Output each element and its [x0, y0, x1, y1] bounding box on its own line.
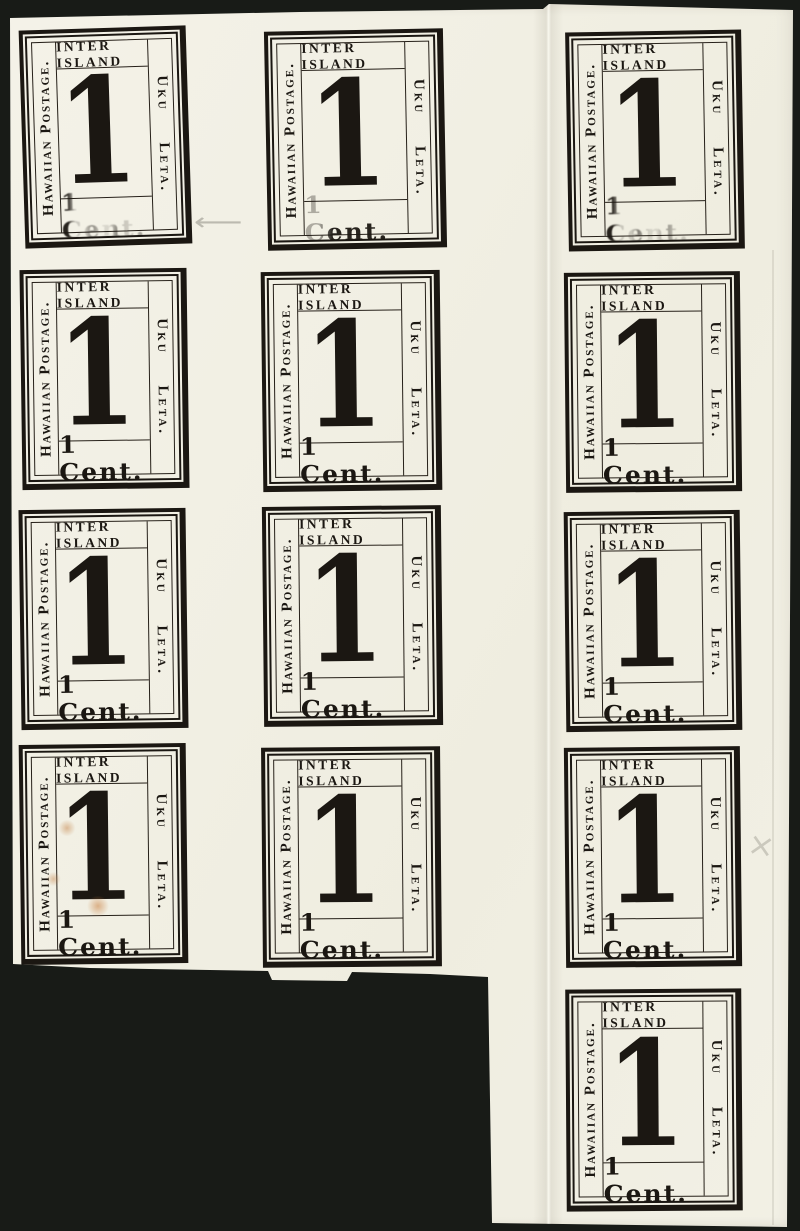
top-label-text: INTER ISLAND	[299, 515, 402, 548]
right-label: Uku Leta.	[405, 320, 423, 438]
numeral: 1	[56, 559, 136, 671]
stamp-r1c2: Hawaiian Postage. INTER ISLAND 1 1 Cent.…	[264, 28, 447, 250]
stamp-inner-frame: Hawaiian Postage. INTER ISLAND 1 1 Cent.…	[31, 755, 174, 951]
stamp-right-strip: Uku Leta.	[402, 518, 428, 710]
denomination-band: 1 Cent.	[58, 679, 149, 714]
stamp-inner-frame: Hawaiian Postage. INTER ISLAND 1 1 Cent.…	[576, 283, 728, 479]
stamp-r5c3: Hawaiian Postage. INTER ISLAND 1 1 Cent.…	[565, 988, 743, 1211]
denomination-label: 1 Cent.	[58, 669, 150, 725]
right-label: Uku Leta.	[152, 75, 173, 193]
numeral: 1	[304, 556, 384, 668]
top-label-text: INTER ISLAND	[56, 518, 147, 551]
denomination-label: 1 Cent.	[603, 1152, 703, 1208]
stamp-r2c2: Hawaiian Postage. INTER ISLAND 1 1 Cent.…	[261, 270, 443, 492]
numeral: 1	[303, 321, 384, 433]
stamp-outer-frame: Hawaiian Postage. INTER ISLAND 1 1 Cent.…	[565, 988, 743, 1211]
stamp-center-panel: INTER ISLAND 1 1 Cent.	[601, 284, 703, 477]
stamp-mid-frame: Hawaiian Postage. INTER ISLAND 1 1 Cent.…	[26, 274, 182, 482]
numeral-panel: 1	[601, 550, 703, 682]
left-label: Hawaiian Postage.	[582, 62, 602, 219]
stamp-center-panel: INTER ISLAND 1 1 Cent.	[56, 521, 150, 714]
top-label: INTER ISLAND	[299, 518, 402, 546]
top-label-text: INTER ISLAND	[57, 278, 148, 311]
top-label: INTER ISLAND	[298, 760, 401, 788]
stamp-outer-frame: Hawaiian Postage. INTER ISLAND 1 1 Cent.…	[261, 746, 442, 968]
left-label: Hawaiian Postage.	[280, 61, 300, 218]
numeral: 1	[605, 561, 686, 673]
stamp-right-strip: Uku Leta.	[147, 521, 174, 713]
top-label-text: INTER ISLAND	[298, 280, 401, 313]
top-label: INTER ISLAND	[56, 40, 148, 70]
left-label: Hawaiian Postage.	[580, 778, 599, 934]
right-label: Uku Leta.	[405, 797, 423, 915]
stamp-mid-frame: Hawaiian Postage. INTER ISLAND 1 1 Cent.…	[268, 511, 435, 719]
denomination-band: 1 Cent.	[59, 439, 150, 474]
stamp-center-panel: INTER ISLAND 1 1 Cent.	[299, 518, 404, 711]
right-edge-crease	[772, 250, 774, 1225]
stamp-left-strip: Hawaiian Postage.	[32, 523, 59, 715]
stamp-inner-frame: Hawaiian Postage. INTER ISLAND 1 1 Cent.…	[273, 758, 428, 953]
stamp-mid-frame: Hawaiian Postage. INTER ISLAND 1 1 Cent.…	[25, 32, 184, 241]
denomination-label: 1 Cent.	[603, 907, 704, 963]
stamp-outer-frame: Hawaiian Postage. INTER ISLAND 1 1 Cent.…	[565, 29, 745, 251]
stamp-left-strip: Hawaiian Postage.	[32, 758, 58, 950]
numeral-panel: 1	[57, 67, 152, 199]
denomination-band: 1 Cent.	[61, 196, 153, 233]
denomination-label: 1 Cent.	[301, 666, 405, 722]
top-label-text: INTER ISLAND	[601, 520, 701, 553]
top-label-text: INTER ISLAND	[301, 39, 405, 73]
stamp-right-strip: Uku Leta.	[401, 759, 427, 951]
left-label: Hawaiian Postage.	[277, 303, 296, 459]
stamp-mid-frame: Hawaiian Postage. INTER ISLAND 1 1 Cent.…	[270, 34, 439, 242]
top-label-text: INTER ISLAND	[601, 281, 701, 314]
numeral-panel: 1	[56, 548, 149, 680]
stamp-mid-frame: Hawaiian Postage. INTER ISLAND 1 1 Cent.…	[570, 516, 735, 724]
top-label: INTER ISLAND	[56, 521, 147, 549]
stamp-left-strip: Hawaiian Postage.	[578, 45, 605, 236]
numeral-panel: 1	[298, 310, 403, 442]
numeral: 1	[57, 319, 137, 431]
pencil-arrow-mark: ⟵	[194, 208, 243, 237]
stamp-inner-frame: Hawaiian Postage. INTER ISLAND 1 1 Cent.…	[273, 282, 428, 478]
numeral: 1	[57, 76, 139, 189]
denomination-label: 1 Cent.	[304, 189, 408, 246]
stamp-outer-frame: Hawaiian Postage. INTER ISLAND 1 1 Cent.…	[564, 746, 742, 968]
stamp-center-panel: INTER ISLAND 1 1 Cent.	[298, 283, 403, 476]
stamp-inner-frame: Hawaiian Postage. INTER ISLAND 1 1 Cent.…	[576, 758, 728, 954]
stamp-center-panel: INTER ISLAND 1 1 Cent.	[601, 759, 703, 952]
stamp-left-strip: Hawaiian Postage.	[577, 286, 603, 478]
numeral-panel: 1	[302, 69, 407, 201]
stamp-inner-frame: Hawaiian Postage. INTER ISLAND 1 1 Cent.…	[31, 38, 178, 234]
stamp-sheet: Hawaiian Postage. INTER ISLAND 1 1 Cent.…	[0, 0, 800, 1231]
stamp-mid-frame: Hawaiian Postage. INTER ISLAND 1 1 Cent.…	[25, 514, 181, 722]
top-label: INTER ISLAND	[601, 284, 701, 312]
stamp-inner-frame: Hawaiian Postage. INTER ISLAND 1 1 Cent.…	[32, 280, 176, 476]
numeral-panel: 1	[603, 70, 705, 202]
right-label: Uku Leta.	[406, 555, 424, 673]
stamp-outer-frame: Hawaiian Postage. INTER ISLAND 1 1 Cent.…	[262, 505, 443, 727]
stamp-center-panel: INTER ISLAND 1 1 Cent.	[602, 1002, 703, 1197]
top-label: INTER ISLAND	[601, 523, 701, 551]
stamp-r4c3: Hawaiian Postage. INTER ISLAND 1 1 Cent.…	[564, 746, 742, 968]
denomination-label: 1 Cent.	[603, 671, 704, 727]
stamp-mid-frame: Hawaiian Postage. INTER ISLAND 1 1 Cent.…	[571, 994, 734, 1203]
stamp-inner-frame: Hawaiian Postage. INTER ISLAND 1 1 Cent.…	[576, 522, 728, 718]
denomination-band: 1 Cent.	[301, 676, 404, 711]
top-label-text: INTER ISLAND	[298, 757, 401, 790]
right-label: Uku Leta.	[705, 321, 723, 439]
denomination-band: 1 Cent.	[605, 200, 706, 236]
stamp-mid-frame: Hawaiian Postage. INTER ISLAND 1 1 Cent.…	[570, 752, 734, 960]
denomination-band: 1 Cent.	[603, 442, 703, 477]
stamp-left-strip: Hawaiian Postage.	[577, 761, 603, 953]
right-label: Uku Leta.	[707, 79, 726, 197]
denomination-band: 1 Cent.	[603, 917, 703, 952]
stamp-inner-frame: Hawaiian Postage. INTER ISLAND 1 1 Cent.…	[31, 520, 175, 716]
numeral-panel: 1	[56, 783, 149, 915]
stamp-center-panel: INTER ISLAND 1 1 Cent.	[57, 281, 151, 474]
stamp-outer-frame: Hawaiian Postage. INTER ISLAND 1 1 Cent.…	[564, 510, 743, 732]
right-label: Uku Leta.	[705, 560, 723, 678]
stamp-inner-frame: Hawaiian Postage. INTER ISLAND 1 1 Cent.…	[577, 1000, 728, 1197]
right-label: Uku Leta.	[151, 558, 170, 676]
stamp-r1c3: Hawaiian Postage. INTER ISLAND 1 1 Cent.…	[565, 29, 745, 251]
numeral: 1	[303, 797, 383, 909]
numeral: 1	[605, 322, 685, 434]
numeral: 1	[307, 79, 388, 191]
stamp-left-strip: Hawaiian Postage.	[277, 44, 305, 235]
denomination-label: 1 Cent.	[58, 904, 150, 960]
stamp-right-strip: Uku Leta.	[701, 759, 727, 951]
stamp-center-panel: INTER ISLAND 1 1 Cent.	[56, 756, 149, 949]
denomination-label: 1 Cent.	[299, 908, 402, 964]
numeral: 1	[56, 794, 136, 906]
stamp-right-strip: Uku Leta.	[148, 281, 175, 473]
stamp-right-strip: Uku Leta.	[401, 283, 427, 475]
denomination-band: 1 Cent.	[58, 914, 149, 949]
stamp-r3c3: Hawaiian Postage. INTER ISLAND 1 1 Cent.…	[564, 510, 743, 732]
numeral: 1	[606, 80, 687, 192]
stamp-inner-frame: Hawaiian Postage. INTER ISLAND 1 1 Cent.…	[276, 41, 433, 237]
left-label: Hawaiian Postage.	[35, 775, 54, 931]
stamp-left-strip: Hawaiian Postage.	[33, 283, 60, 475]
stamp-outer-frame: Hawaiian Postage. INTER ISLAND 1 1 Cent.…	[18, 508, 188, 730]
stamp-outer-frame: Hawaiian Postage. INTER ISLAND 1 1 Cent.…	[19, 268, 189, 490]
top-label-text: INTER ISLAND	[601, 756, 701, 789]
top-label: INTER ISLAND	[602, 1002, 702, 1030]
stamp-center-panel: INTER ISLAND 1 1 Cent.	[301, 42, 408, 235]
stamp-left-strip: Hawaiian Postage.	[274, 285, 300, 477]
denomination-label: 1 Cent.	[605, 190, 706, 247]
stamp-mid-frame: Hawaiian Postage. INTER ISLAND 1 1 Cent.…	[25, 749, 181, 957]
top-label: INTER ISLAND	[57, 281, 148, 309]
numeral-panel: 1	[298, 787, 402, 919]
stamp-right-strip: Uku Leta.	[701, 523, 727, 715]
stamp-left-strip: Hawaiian Postage.	[275, 520, 301, 712]
stamp-r2c1: Hawaiian Postage. INTER ISLAND 1 1 Cent.…	[19, 268, 189, 490]
stamp-r2c3: Hawaiian Postage. INTER ISLAND 1 1 Cent.…	[564, 271, 742, 493]
denomination-label: 1 Cent.	[603, 432, 704, 488]
stamp-outer-frame: Hawaiian Postage. INTER ISLAND 1 1 Cent.…	[19, 743, 189, 965]
numeral-panel: 1	[57, 308, 150, 440]
denomination-label: 1 Cent.	[59, 429, 151, 485]
denomination-band: 1 Cent.	[603, 1162, 703, 1197]
denomination-label: 1 Cent.	[300, 431, 404, 487]
numeral-panel: 1	[299, 545, 403, 677]
stamp-right-strip: Uku Leta.	[147, 39, 177, 230]
stamp-mid-frame: Hawaiian Postage. INTER ISLAND 1 1 Cent.…	[571, 36, 737, 244]
denomination-band: 1 Cent.	[603, 681, 703, 716]
top-label: INTER ISLAND	[602, 43, 702, 72]
top-label: INTER ISLAND	[56, 756, 147, 784]
stamp-outer-frame: Hawaiian Postage. INTER ISLAND 1 1 Cent.…	[264, 28, 447, 250]
stamp-r3c2: Hawaiian Postage. INTER ISLAND 1 1 Cent.…	[262, 505, 443, 727]
stamp-outer-frame: Hawaiian Postage. INTER ISLAND 1 1 Cent.…	[564, 271, 742, 493]
stamp-center-panel: INTER ISLAND 1 1 Cent.	[56, 40, 153, 233]
denomination-band: 1 Cent.	[300, 441, 403, 476]
right-label: Uku Leta.	[409, 78, 428, 196]
stamp-r3c1: Hawaiian Postage. INTER ISLAND 1 1 Cent.…	[18, 508, 188, 730]
stamp-center-panel: INTER ISLAND 1 1 Cent.	[601, 523, 703, 716]
left-label: Hawaiian Postage.	[36, 301, 55, 457]
stamp-mid-frame: Hawaiian Postage. INTER ISLAND 1 1 Cent.…	[267, 752, 434, 959]
left-label: Hawaiian Postage.	[581, 1021, 599, 1177]
top-label-text: INTER ISLAND	[56, 753, 147, 786]
top-label: INTER ISLAND	[601, 759, 701, 787]
numeral-panel: 1	[601, 311, 702, 443]
left-label: Hawaiian Postage.	[580, 543, 599, 699]
left-label: Hawaiian Postage.	[35, 541, 54, 697]
stamp-outer-frame: Hawaiian Postage. INTER ISLAND 1 1 Cent.…	[261, 270, 443, 492]
stamp-inner-frame: Hawaiian Postage. INTER ISLAND 1 1 Cent.…	[577, 42, 730, 238]
vertical-fold-crease	[533, 0, 563, 1231]
numeral-panel: 1	[601, 786, 702, 918]
right-label: Uku Leta.	[707, 1040, 725, 1158]
stamp-left-strip: Hawaiian Postage.	[274, 760, 300, 952]
stamp-right-strip: Uku Leta.	[701, 284, 727, 476]
left-label: Hawaiian Postage.	[36, 59, 58, 216]
right-label: Uku Leta.	[151, 793, 169, 911]
stamp-right-strip: Uku Leta.	[147, 756, 173, 948]
stamp-right-strip: Uku Leta.	[702, 1001, 727, 1195]
top-label-text: INTER ISLAND	[602, 40, 703, 74]
stamp-left-strip: Hawaiian Postage.	[577, 525, 603, 717]
left-label: Hawaiian Postage.	[580, 303, 599, 459]
numeral-panel: 1	[603, 1029, 704, 1163]
stamp-center-panel: INTER ISLAND 1 1 Cent.	[602, 43, 705, 236]
numeral: 1	[605, 797, 685, 909]
numeral: 1	[606, 1040, 686, 1152]
stamp-right-strip: Uku Leta.	[702, 43, 729, 234]
top-label: INTER ISLAND	[301, 42, 404, 71]
stamp-r4c1: Hawaiian Postage. INTER ISLAND 1 1 Cent.…	[19, 743, 189, 965]
top-label: INTER ISLAND	[298, 283, 401, 311]
stamp-r4c2: Hawaiian Postage. INTER ISLAND 1 1 Cent.…	[261, 746, 442, 968]
stamp-mid-frame: Hawaiian Postage. INTER ISLAND 1 1 Cent.…	[267, 276, 435, 484]
photo-background: Hawaiian Postage. INTER ISLAND 1 1 Cent.…	[0, 0, 800, 1231]
stamp-r1c1: Hawaiian Postage. INTER ISLAND 1 1 Cent.…	[19, 25, 193, 248]
left-label: Hawaiian Postage.	[278, 537, 297, 693]
left-label: Hawaiian Postage.	[277, 778, 295, 934]
right-label: Uku Leta.	[152, 318, 171, 436]
stamp-outer-frame: Hawaiian Postage. INTER ISLAND 1 1 Cent.…	[19, 25, 193, 248]
denomination-band: 1 Cent.	[304, 199, 408, 235]
stamp-right-strip: Uku Leta.	[404, 42, 432, 233]
right-label: Uku Leta.	[705, 796, 723, 914]
top-label-text: INTER ISLAND	[602, 999, 702, 1032]
denomination-label: 1 Cent.	[61, 186, 154, 244]
stamp-inner-frame: Hawaiian Postage. INTER ISLAND 1 1 Cent.…	[274, 517, 429, 713]
denomination-band: 1 Cent.	[300, 918, 403, 953]
stamp-left-strip: Hawaiian Postage.	[578, 1002, 603, 1196]
stamp-center-panel: INTER ISLAND 1 1 Cent.	[298, 760, 403, 953]
stamp-mid-frame: Hawaiian Postage. INTER ISLAND 1 1 Cent.…	[570, 277, 734, 485]
